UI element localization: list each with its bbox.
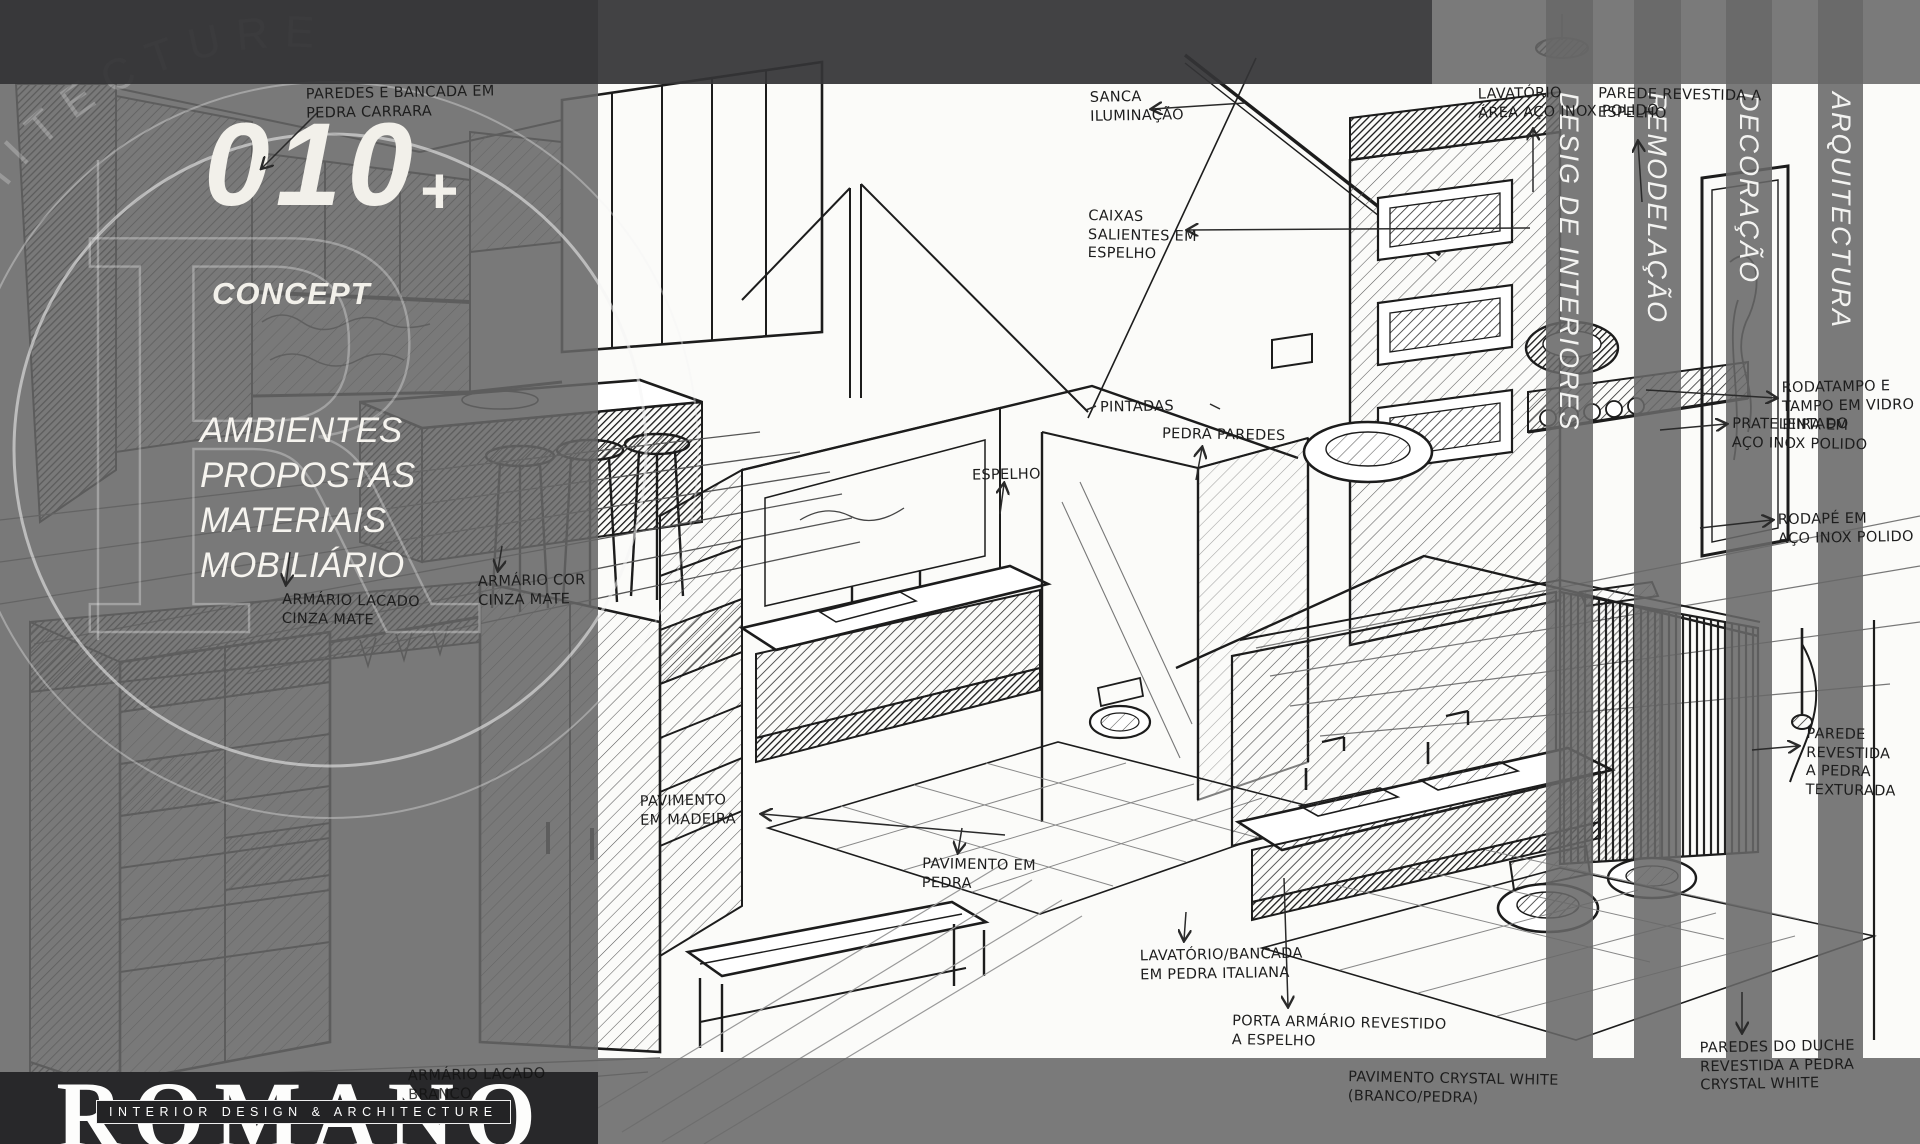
stripe-label: DESIG DE INTERIORES (1553, 92, 1584, 432)
menu-item-propostas: PROPOSTAS (200, 453, 415, 498)
stripe-label: ARQUITECTURA (1825, 92, 1856, 329)
stripe-label: REMODELAÇÃO (1641, 92, 1672, 324)
board-number-plus: + (419, 153, 458, 227)
note-sanca: SANCA ILUMINAÇÃO (1090, 87, 1184, 126)
note-espelho: ESPELHO (972, 465, 1041, 485)
note-porta-armario: PORTA ARMÁRIO REVESTIDO A ESPELHO (1232, 1012, 1447, 1053)
note-caixas-espelho: CAIXAS SALIENTES EM ESPELHO (1088, 207, 1198, 265)
note-paredes-duche: PAREDES DO DUCHE REVESTIDA A PEDRA CRYST… (1700, 1037, 1856, 1095)
menu-item-ambientes: AMBIENTES (200, 408, 415, 453)
note-pavimento-pedra: PAVIMENTO EM PEDRA (922, 855, 1036, 894)
menu-item-mobiliario: MOBILIÁRIO (200, 543, 415, 588)
note-prateleira: PRATELEIRA EM AÇO INOX POLIDO (1732, 415, 1868, 454)
note-pavimento-madeira: PAVIMENTO EM MADEIRA (640, 791, 736, 830)
note-pedra-texturada: PAREDE REVESTIDA A PEDRA TEXTURADA (1805, 725, 1920, 801)
note-armario-branco: ARMÁRIO LACADO BRANCO (408, 1065, 546, 1104)
concept-label: CONCEPT (212, 276, 371, 312)
note-parede-espelho: PAREDE REVESTIDA A ESPELHO (1598, 85, 1762, 125)
note-pintadas: PINTADAS (1100, 397, 1174, 417)
brand-tagline: INTERIOR DESIGN & ARCHITECTURE (96, 1100, 511, 1124)
note-paredes-bancada: PAREDES E BANCADA EM PEDRA CARRARA (306, 82, 495, 122)
note-lavatorio-bancada: LAVATÓRIO/BANCADA EM PEDRA ITALIANA (1140, 945, 1303, 985)
top-dark-band (0, 0, 1432, 84)
board-number: 010+ (204, 106, 457, 224)
stripe-remodelacao: REMODELAÇÃO (1634, 0, 1681, 1058)
concept-board: DESIG DE INTERIORES REMODELAÇÃO DECORAÇÃ… (0, 0, 1920, 1144)
note-armario-lacado: ARMÁRIO LACADO CINZA MATE (282, 591, 420, 630)
menu-item-materiais: MATERIAIS (200, 498, 415, 543)
stripe-decoracao: DECORAÇÃO (1726, 0, 1772, 1058)
panel-menu: AMBIENTES PROPOSTAS MATERIAIS MOBILIÁRIO (200, 408, 415, 588)
note-armario-cor: ARMÁRIO COR CINZA MATE (478, 571, 586, 610)
stripe-design-interiores: DESIG DE INTERIORES (1546, 0, 1593, 1058)
top-gray-band (1432, 0, 1920, 84)
note-rodape: RODAPÉ EM AÇO INOX POLIDO (1778, 509, 1914, 548)
note-pavimento-crystal: PAVIMENTO CRYSTAL WHITE (BRANCO/PEDRA) (1348, 1068, 1559, 1109)
note-pedra-paredes: PEDRA PAREDES (1162, 425, 1286, 446)
